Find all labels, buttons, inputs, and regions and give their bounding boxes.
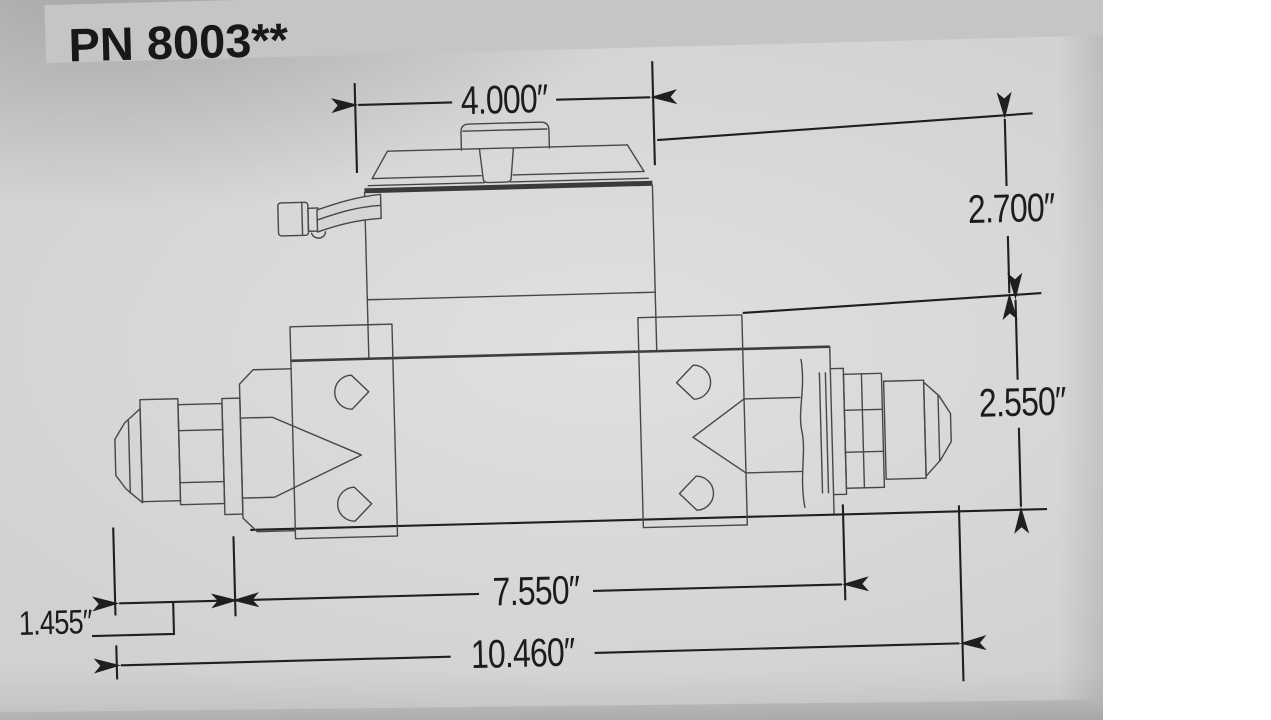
extension-line (742, 293, 1041, 313)
dimension-lower-height: 2.550″ (742, 293, 1069, 514)
screenshot-root: PN 8003** (0, 0, 1271, 720)
cover-bottom-edge (372, 171, 644, 178)
pump-drawing (107, 109, 1047, 543)
body-right-edge (830, 347, 834, 515)
tilted-page-content: PN 8003** (3, 0, 1103, 706)
left-inlet-neck-lines (241, 415, 362, 498)
inlet-nose-line (128, 421, 130, 493)
left-bracket-lower-bolt-hole (337, 487, 372, 522)
body-top-edge (291, 347, 830, 361)
right-bracket-upper-bolt-hole (676, 365, 711, 400)
part-number-banner: PN 8003** (44, 0, 1103, 72)
dimension-line (1008, 236, 1009, 293)
inlet-hex-face-lower (180, 482, 224, 483)
outlet-hex-divider (861, 374, 864, 488)
leader-line (91, 602, 174, 636)
dimension-label-overall-length: 10.460″ (470, 629, 576, 677)
extension-line (652, 61, 655, 165)
cover-top-edge (387, 145, 627, 151)
dimension-line (593, 584, 842, 591)
connector-plug (278, 202, 309, 236)
cover-clamp-tab (479, 148, 514, 183)
dimension-line (1016, 300, 1018, 380)
outlet-threads (884, 380, 927, 479)
connector-plug-line (302, 202, 303, 235)
motor-bottom-edge (367, 292, 655, 300)
pump-body (238, 307, 1047, 540)
adjuster-knob (461, 122, 550, 150)
dimension-fitting-length: 1.455″ (16, 524, 234, 682)
outlet-an-fitting (830, 366, 952, 495)
extension-line (113, 527, 117, 679)
wire-conduit (317, 194, 382, 232)
part-number: PN 8003** (68, 13, 290, 72)
knob-inner-line (463, 129, 547, 131)
inlet-hex-nut (178, 404, 225, 505)
right-mounting-bracket (638, 315, 747, 528)
dimension-label-body-length: 7.550″ (492, 567, 581, 615)
inlet-flange (239, 369, 295, 532)
right-outlet-neck-lines (692, 397, 802, 474)
motor-assembly (363, 119, 657, 358)
extension-line (355, 83, 357, 173)
inlet-threads (140, 399, 181, 502)
dimension-line (173, 600, 232, 602)
wire-loop (312, 232, 326, 238)
dimension-line (238, 594, 479, 600)
left-bracket-upper-bolt-hole (334, 375, 369, 410)
outlet-flange-line-2 (825, 373, 828, 493)
extension-line (233, 536, 235, 616)
pump-diagram-svg: PN 8003** (0, 0, 1103, 720)
dimension-label-lower-height: 2.550″ (978, 378, 1067, 426)
dimension-label-top-width: 4.000″ (460, 76, 549, 124)
page-margin (1103, 0, 1271, 720)
outlet-flange-contour (799, 359, 806, 507)
dimension-top-width: 4.000″ (354, 61, 655, 173)
dimension-line (1005, 119, 1007, 186)
dimension-upper-height: 2.700″ (657, 113, 1058, 302)
motor-right-edge (652, 185, 656, 351)
cover-left-slant (371, 151, 388, 178)
dimension-line (121, 657, 451, 666)
extension-line (843, 504, 846, 600)
dimension-line (358, 102, 452, 104)
body-bottom-edge-and-extension (250, 509, 1047, 530)
extension-line (959, 505, 964, 681)
outlet-flange-line-1 (819, 373, 822, 493)
catalog-photo: PN 8003** (0, 0, 1103, 720)
outlet-hex-face-lower (845, 451, 883, 452)
extension-line (657, 113, 1033, 140)
dimension-label-fitting-length: 1.455″ (18, 602, 93, 643)
right-bracket-lower-bolt-hole (679, 476, 714, 511)
dimension-line (1019, 428, 1021, 507)
inlet-an-fitting (114, 397, 243, 517)
outlet-nose-line (938, 396, 940, 460)
dimension-label-upper-height: 2.700″ (967, 184, 1056, 232)
cover-right-slant (627, 144, 644, 171)
inlet-hex-face-upper (179, 430, 223, 431)
dimension-line (556, 97, 650, 99)
dimension-line (119, 602, 173, 603)
dimension-line (595, 643, 960, 653)
outlet-hex-face-upper (844, 409, 882, 410)
